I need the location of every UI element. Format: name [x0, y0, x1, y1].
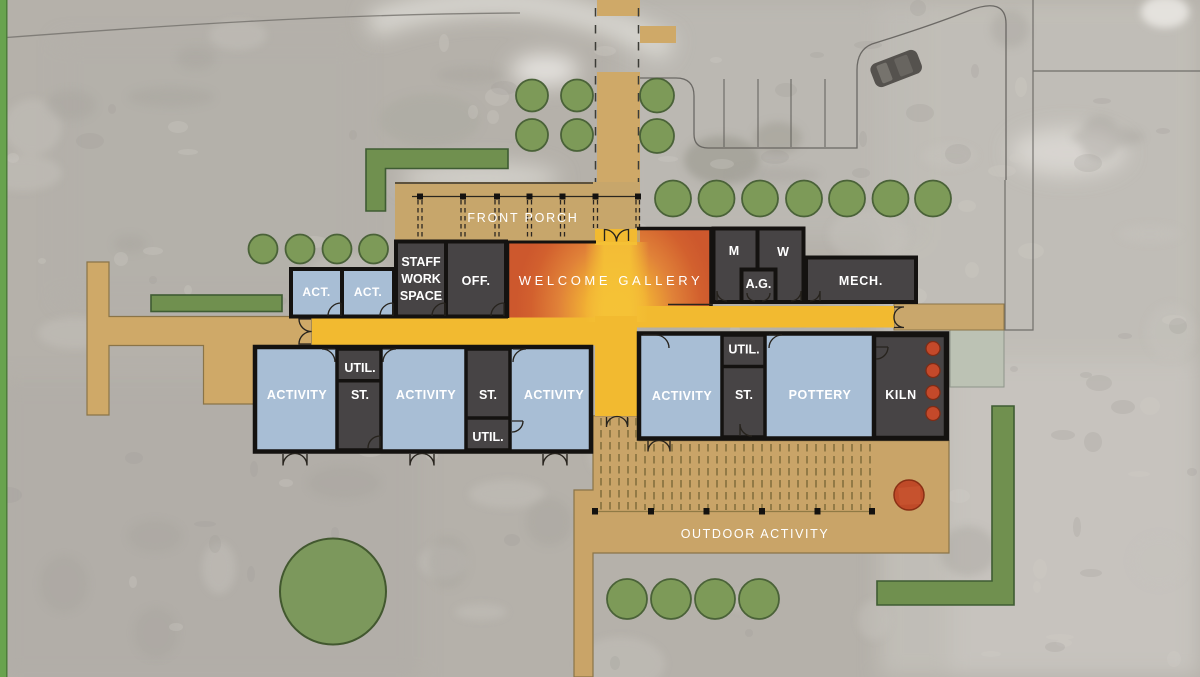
svg-text:A.G.: A.G.	[746, 277, 772, 291]
svg-text:UTIL.: UTIL.	[728, 343, 759, 357]
svg-text:ACT.: ACT.	[354, 285, 382, 299]
svg-text:ST.: ST.	[351, 388, 369, 402]
svg-text:POTTERY: POTTERY	[789, 388, 852, 402]
svg-text:SPACE: SPACE	[400, 289, 442, 303]
svg-text:ST.: ST.	[735, 388, 753, 402]
svg-text:FRONT PORCH: FRONT PORCH	[467, 211, 578, 225]
svg-text:ST.: ST.	[479, 388, 497, 402]
svg-text:ACTIVITY: ACTIVITY	[524, 388, 584, 402]
svg-text:OUTDOOR ACTIVITY: OUTDOOR ACTIVITY	[681, 527, 830, 541]
svg-text:M: M	[729, 244, 739, 258]
svg-text:KILN: KILN	[885, 388, 917, 402]
svg-text:WELCOME GALLERY: WELCOME GALLERY	[519, 273, 704, 288]
svg-text:UTIL.: UTIL.	[344, 361, 375, 375]
svg-text:STAFF: STAFF	[401, 255, 441, 269]
svg-text:UTIL.: UTIL.	[472, 430, 503, 444]
svg-text:ACTIVITY: ACTIVITY	[267, 388, 327, 402]
svg-text:MECH.: MECH.	[839, 274, 883, 288]
svg-text:ACTIVITY: ACTIVITY	[652, 389, 712, 403]
svg-text:WORK: WORK	[401, 272, 441, 286]
svg-text:W: W	[777, 245, 789, 259]
svg-text:ACTIVITY: ACTIVITY	[396, 388, 456, 402]
svg-text:ACT.: ACT.	[302, 285, 330, 299]
svg-text:OFF.: OFF.	[462, 274, 491, 288]
